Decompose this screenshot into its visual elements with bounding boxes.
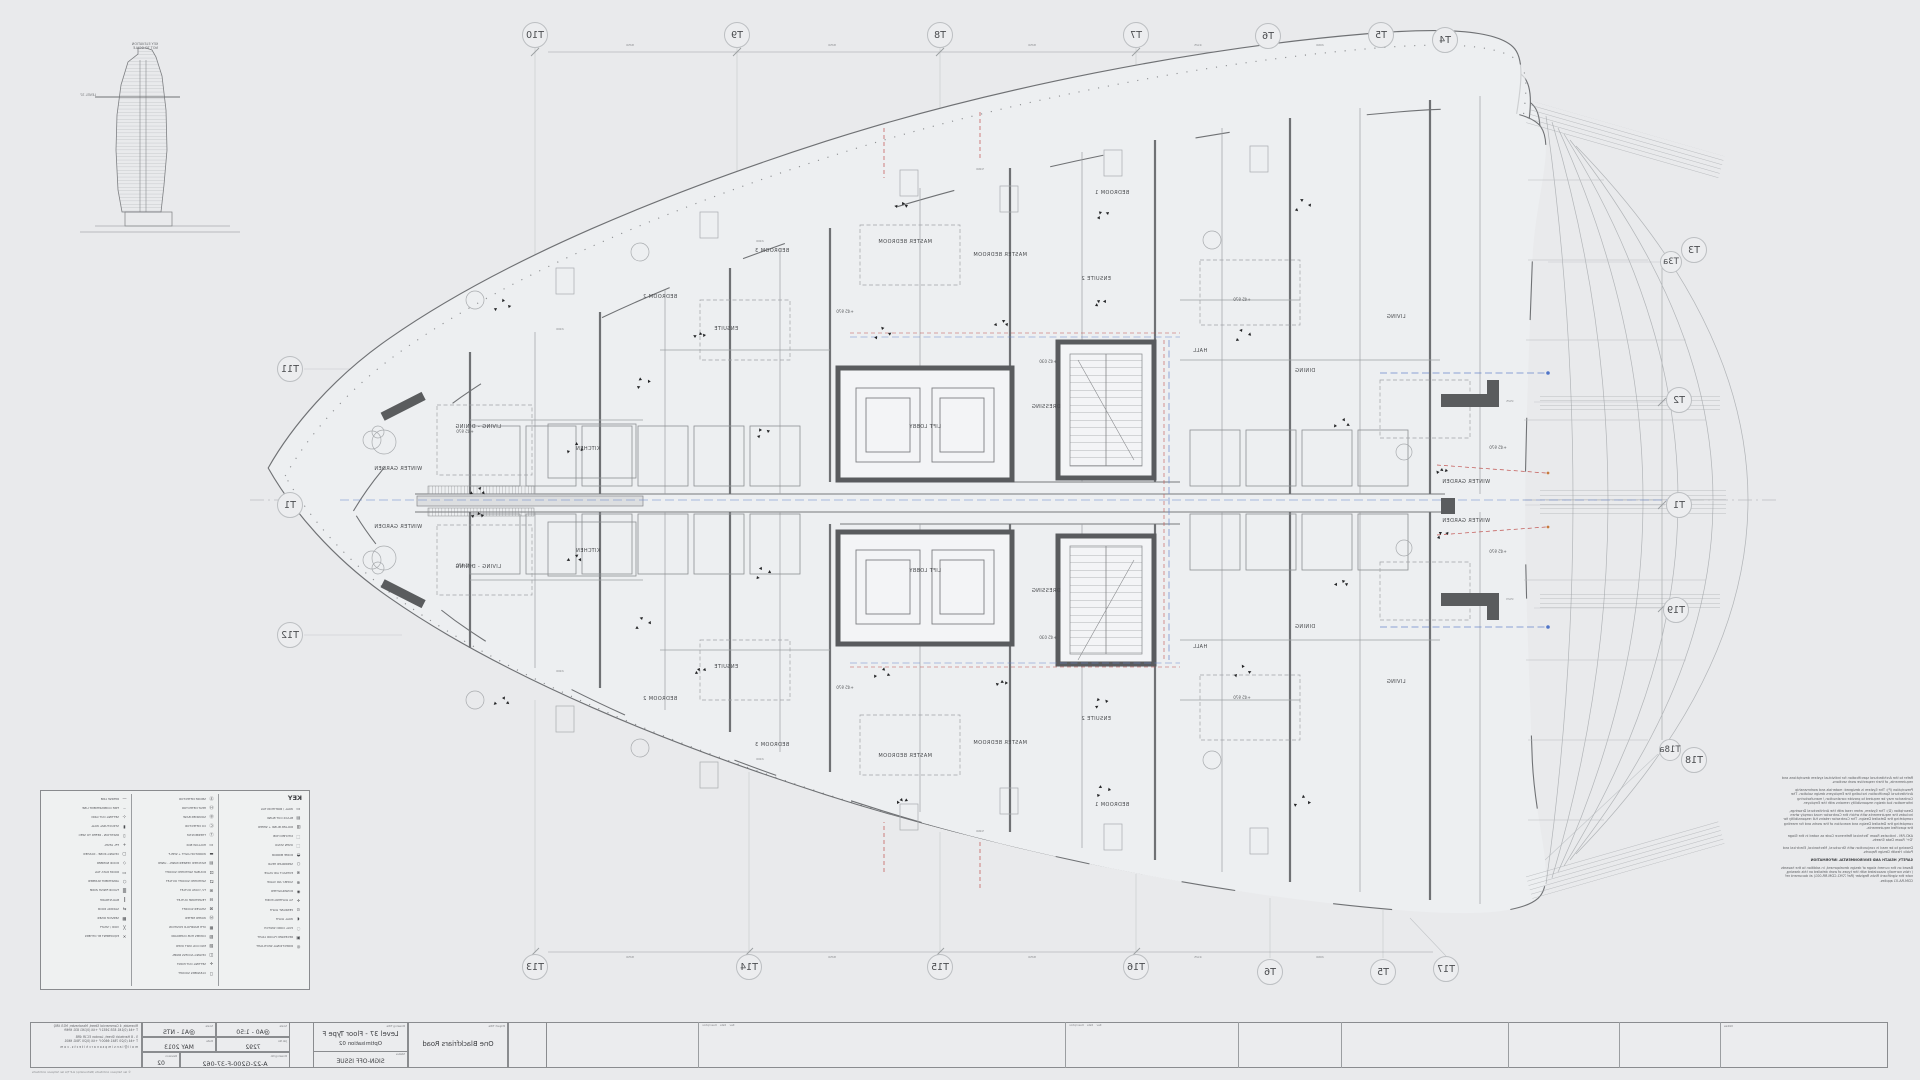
key-item: ▢CEILING ZONE - DASHED (48, 849, 128, 858)
grid-bubble-t5: T5 (1370, 959, 1396, 985)
key-item-label: CO DETECTOR (185, 824, 206, 828)
title-block (30, 1022, 1888, 1068)
room-label: ENSUITE 2 (1048, 277, 1144, 283)
key-symbol-icon: ▬ (208, 851, 215, 856)
key-item: ◖WALL LIGHT (222, 914, 302, 923)
key-symbol-icon: ▤ (295, 815, 302, 820)
key-item-label: CLEANERS SOCKET (178, 971, 206, 975)
room-label: WINTER GARDEN (350, 525, 446, 531)
level-tag: +45 970 (830, 685, 860, 690)
key-symbol-icon: ▒ (121, 888, 128, 893)
notes-paragraph: Prescription (P): The System is designed… (1780, 788, 1913, 805)
dim-label: 8250 (1020, 43, 1044, 47)
key-item-label: WALL / PARTITION TAG (261, 807, 293, 811)
level-tag: +45 970 (450, 429, 480, 434)
key-item: ▬WORKTOP LIGHT + SHELF (135, 849, 215, 858)
grid-bubble-t9: T9 (724, 22, 750, 48)
key-symbol-icon: ◻ (208, 971, 215, 976)
dim-label: 8250 (618, 955, 642, 959)
key-item: ▤BLACK OUT BLIND (222, 813, 302, 822)
revision-value: 02 (143, 1060, 179, 1067)
drawing-title-cell: Drawing Title Level 37 - Floor Type F Op… (313, 1022, 408, 1068)
rev-table-header: Rev Date Description (1069, 1024, 1101, 1027)
elevation-caption: KEY ELEVATION NOT TO SCALE (88, 42, 158, 50)
key-symbol-icon: ✛ (208, 961, 215, 966)
key-item: ⚀DOUBLE SWITCHED SOCKET (135, 868, 215, 877)
job-number-value: 7292 (217, 1044, 289, 1051)
titleblock-divider (1065, 1022, 1066, 1068)
grid-bubble-t8: T8 (927, 22, 953, 48)
key-item: —DEMISE LINE (48, 794, 128, 803)
key-item-label: KITCHEN HOB (273, 834, 293, 838)
dim-label: 1523 (1498, 597, 1522, 601)
notes-block: Refer to the Architectural specification… (1780, 776, 1913, 886)
key-item: ⊙PENDANT LIGHT (222, 905, 302, 914)
drawing-subtitle: Optimisation 02 (314, 1041, 407, 1047)
key-item-label: SLIDING DOOR (98, 907, 119, 911)
grid-bubble-t6: T6 (1257, 959, 1283, 985)
key-item: ▨FAN COIL UNIT OVER (135, 941, 215, 950)
notes-paragraph: AXO-RM - Indicates Room Technical Refere… (1780, 834, 1913, 843)
key-item: ╳VOID / SHAFT (48, 923, 128, 932)
key-item-label: VOID / SHAFT (100, 925, 119, 929)
architect-email: m a i l @ i a n s i m p s o n a r c h i … (34, 1046, 138, 1050)
key-item-label: DEMISE LINE (101, 797, 119, 801)
key-item: ▭ROOM DATA TAG (48, 868, 128, 877)
key-symbol-icon: ▢ (121, 851, 128, 856)
key-symbol-icon: ✕ (121, 934, 128, 939)
key-item: ▯PARTITION - REFER TO SPEC (48, 831, 128, 840)
dim-label: 4125 (1186, 955, 1210, 959)
dim-label: 1525 (1498, 399, 1522, 403)
key-item: ⒸCO DETECTOR (135, 822, 215, 831)
key-item-label: WATER METER (185, 916, 206, 920)
room-label: BEDROOM 2 (612, 295, 708, 301)
key-item: ▮STRUCTURAL WALL (48, 822, 128, 831)
key-item-label: APARTMENT NUMBER (88, 879, 119, 883)
key-item-label: ROLLER BLIND + SHEER (258, 825, 293, 829)
key-item-label: CEILING ZONE - DASHED (83, 852, 119, 856)
key-item: ⚁SWITCHED SOCKET OUTLET (135, 877, 215, 886)
level-tag: +45 970 (1483, 549, 1513, 554)
key-symbol-icon: ▨ (208, 943, 215, 948)
key-symbol-icon: ⇄ (121, 906, 128, 911)
key-item-label: ROOM DATA TAG (95, 870, 119, 874)
room-label: DRESSING (998, 405, 1094, 411)
date-cell: Date MAY 2013 (142, 1037, 216, 1052)
key-item: ⒽHEAT DETECTOR (135, 803, 215, 812)
key-symbol-icon: ◒ (295, 852, 302, 857)
key-item: ◌PULL CORD SWITCH (222, 923, 302, 932)
key-item-label: WORKTOP LIGHT + SHELF (168, 852, 206, 856)
titleblock-divider (1341, 1022, 1342, 1068)
room-label: HALL (1152, 645, 1248, 651)
room-label: HALL (1152, 349, 1248, 355)
grid-bubble-t5: T5 (1368, 22, 1394, 48)
key-item: ⊹SETTING OUT GRID (48, 812, 128, 821)
dim-label: 4125 (1186, 43, 1210, 47)
key-item-label: SPRINKLER HEAD (268, 862, 293, 866)
scale-a1-cell: Scale @A1 - NTS (142, 1022, 216, 1037)
level-tag: +45 030 (1033, 359, 1063, 364)
titleblock-divider (1508, 1022, 1509, 1068)
key-item: ✛5A LIGHTING POINT (222, 896, 302, 905)
key-item: ◒DOME MIRROR (222, 850, 302, 859)
key-item-label: EXTRACT AIR VALVE (264, 871, 293, 875)
grid-bubble-t3: T3 (1681, 237, 1707, 263)
key-symbol-icon: ║ (121, 897, 128, 902)
key-symbol-icon: ▭ (208, 842, 215, 847)
key-symbol-icon: ⬚ (295, 843, 302, 848)
room-label: LIVING (1348, 680, 1444, 686)
key-item-label: HEAT DETECTOR (182, 806, 206, 810)
dim-label: 2060 (1308, 955, 1332, 959)
date-value: MAY 2013 (143, 1044, 215, 1051)
notes-paragraph: Refer to the Architectural specification… (1780, 776, 1913, 785)
drawing-sheet: KEY ELEVATION NOT TO SCALE LEVEL 37 T10T… (0, 0, 1920, 1080)
key-symbol-icon: ▥ (295, 824, 302, 829)
key-symbol-icon: ╳ (121, 925, 128, 930)
key-item-label: PULL CORD SWITCH (264, 926, 293, 930)
key-symbol-icon: ◎ (295, 944, 302, 949)
key-item-label: RECESSED FLOOR LIGHT (257, 935, 293, 939)
key-symbol-icon: ◫ (208, 952, 215, 957)
room-label: KITCHEN (540, 447, 636, 453)
room-label: WINTER GARDEN (1418, 519, 1514, 525)
key-item-label: EQUIPMENT BY OTHERS (85, 934, 119, 938)
key-item-label: SHAVER SOCKET (182, 907, 206, 911)
level-tag: +45 970 (450, 563, 480, 568)
grid-bubble-t2: T2 (1666, 387, 1692, 413)
key-symbol-icon: — (121, 796, 128, 801)
key-item-label: TV / DATA OUTLET (180, 888, 206, 892)
room-label: LIFT LOBBY (877, 425, 973, 431)
grid-bubble-t15: T15 (927, 954, 953, 980)
address2-line2: T +44 (0)20 7841 6600 F +44 (0)20 7841 6… (34, 1040, 138, 1044)
room-label: LIVING (1348, 315, 1444, 321)
key-symbol-icon: ▭ (121, 870, 128, 875)
rev-table-header: Rev Date Description (702, 1024, 734, 1027)
key-item: ⊞TV / DATA OUTLET (135, 886, 215, 895)
dim-label: 8250 (1020, 955, 1044, 959)
room-label: MASTER BEDROOM (952, 253, 1048, 259)
copyright-line: © Ian Simpson Architects (Partnership) L… (32, 1070, 131, 1074)
notes-paragraph: Drawing to be read in conjunction with S… (1780, 846, 1913, 855)
grid-bubble-t11: T11 (277, 356, 303, 382)
key-item: ▭WALL / PARTITION TAG (222, 804, 302, 813)
key-symbol-icon: ⬡ (121, 879, 128, 884)
job-number-cell: Job No 7292 (216, 1037, 290, 1052)
room-label: BEDROOM 1 (1064, 803, 1160, 809)
notes-paragraph: Based on the current stage of design dev… (1780, 866, 1913, 883)
key-item: ⊠SHAVER SOCKET (135, 904, 215, 913)
key-item: ▦UFH MANIFOLD POSITION (135, 923, 215, 932)
notes-heading: SAFETY, HEALTH AND ENVIRONMENTAL INFORMA… (1780, 858, 1913, 862)
key-item: ▥ROLLER BLIND + SHEER (222, 822, 302, 831)
key-item: ◉DOWNLIGHTER (222, 887, 302, 896)
key-item: ⊟TELEPHONE OUTLET (135, 895, 215, 904)
key-symbol-icon: ⚁ (208, 879, 215, 884)
key-item: ⓈSMOKE DETECTOR (135, 794, 215, 803)
key-item: ▣RECESSED FLOOR LIGHT (222, 933, 302, 942)
titleblock-divider (1619, 1022, 1620, 1068)
key-symbol-icon: ◖ (295, 916, 302, 921)
key-item: ▒FLOOR FINISH ZONE (48, 886, 128, 895)
key-symbol-icon: ◇ (121, 860, 128, 865)
key-item: ◫CEILING ACCESS PANEL (135, 950, 215, 959)
grid-bubble-t7: T7 (1123, 22, 1149, 48)
key-item-label: SETTING OUT GRID (91, 815, 119, 819)
grid-bubble-t4: T4 (1432, 27, 1458, 53)
room-label: DINING (1257, 625, 1353, 631)
project-title-cell: Project Title One Blackfriars Road (408, 1022, 508, 1068)
key-symbol-icon: ⊗ (295, 870, 302, 875)
room-label: BEDROOM 1 (1064, 191, 1160, 197)
key-item: ⓂWATER METER (135, 913, 215, 922)
room-label: ENSUITE (678, 327, 774, 333)
key-item: ⇄SLIDING DOOR (48, 904, 128, 913)
key-symbol-icon: ▣ (295, 935, 302, 940)
key-symbol-icon: ✛ (295, 898, 302, 903)
key-symbol-icon: ⊟ (208, 897, 215, 902)
key-item-label: FLOOR FINISH ZONE (90, 888, 119, 892)
key-item: ◎DIRECTIONAL SPOTLIGHT (222, 942, 302, 951)
key-item-label: PARTITION - REFER TO SPEC (78, 833, 119, 837)
key-item: ⊕SUPPLY AIR VALVE (222, 878, 302, 887)
key-item-label: FFL LEVEL (104, 843, 119, 847)
notes-paragraph: Description (D): The System, when read w… (1780, 809, 1913, 830)
key-symbol-icon: ▧ (208, 934, 215, 939)
key-symbol-icon: ⊞ (208, 888, 215, 893)
titleblock-divider (1720, 1022, 1721, 1068)
key-item-label: STRUCTURAL WALL (91, 824, 119, 828)
key-item-label: FIRE COMPARTMENT LINE (82, 806, 119, 810)
level-tag: +45 970 (830, 309, 860, 314)
key-symbol-icon: ﹘ (121, 805, 128, 811)
key-item-label: PENDANT LIGHT (270, 908, 293, 912)
dim-label: 5460 (968, 829, 992, 833)
room-label: MASTER BEDROOM (857, 754, 953, 760)
key-item: ⊗EXTRACT AIR VALVE (222, 868, 302, 877)
grid-bubble-t3a: T3a (1660, 251, 1682, 273)
key-symbol-icon: Ⓢ (208, 796, 215, 802)
key-item: ﹘FIRE COMPARTMENT LINE (48, 803, 128, 812)
room-label: DINING (1257, 369, 1353, 375)
grid-bubble-t16: T16 (1123, 954, 1149, 980)
grid-bubble-t17: T17 (1433, 956, 1459, 982)
dim-label: 2060 (1308, 43, 1332, 47)
key-symbol-icon: ⬚ (295, 834, 302, 839)
key-symbol-icon: Ⓜ (208, 915, 215, 921)
key-item-label: COMMS HUB CUPBOARD (171, 934, 206, 938)
scale-a0-value: @A0 - 1:50 (217, 1029, 289, 1036)
drawing-title: Level 37 - Floor Type F (314, 1030, 407, 1038)
key-symbol-icon: ◌ (295, 926, 302, 931)
titleblock-divider (1238, 1022, 1239, 1068)
key-legend: KEY ▭WALL / PARTITION TAG▤BLACK OUT BLIN… (40, 790, 310, 990)
key-item: ▩SERVICE RISER (48, 913, 128, 922)
key-item-label: DOOR NUMBER (97, 861, 119, 865)
key-item-label: DOME MIRROR (272, 853, 293, 857)
key-item-label: DOWNLIGHTER (271, 889, 293, 893)
key-item: ⬚KITCHEN HOB (222, 832, 302, 841)
room-label: KITCHEN (540, 549, 636, 555)
status-value: SIGN-OFF ISSUE (314, 1058, 407, 1065)
room-label: BEDROOM 2 (612, 697, 708, 703)
key-item-label: CEILING ACCESS PANEL (172, 953, 206, 957)
key-item-label: HOLLOW BOX (186, 843, 206, 847)
issue-cell (508, 1022, 547, 1068)
dim-label: 2400 (748, 757, 772, 761)
elevation-caption-line2: NOT TO SCALE (133, 46, 158, 50)
room-label: BEDROOM 3 (724, 743, 820, 749)
room-label: ENSUITE 2 (1048, 717, 1144, 723)
level-tag: +45 970 (1227, 297, 1257, 302)
scale-a1-value: @A1 - NTS (143, 1029, 215, 1036)
level-tag: +45 030 (1033, 635, 1063, 640)
grid-bubble-t19: T19 (1663, 597, 1689, 623)
room-label: BEDROOM 3 (724, 249, 820, 255)
key-item-label: OVEN STACK (275, 843, 293, 847)
key-item: ✕EQUIPMENT BY OTHERS (48, 932, 128, 941)
key-item-label: 5A LIGHTING POINT (265, 898, 293, 902)
dim-label: 8250 (820, 955, 844, 959)
key-item: ║BALUSTRADE (48, 895, 128, 904)
address1-line2: T +44 (0)161 835 2652 F +44 (0)161 831 6… (34, 1029, 138, 1033)
key-item-label: WALL LIGHT (276, 917, 293, 921)
key-item: ⬡APARTMENT NUMBER (48, 877, 128, 886)
mirrored-annotation-layer: KEY ELEVATION NOT TO SCALE LEVEL 37 T10T… (0, 0, 1920, 1080)
key-symbol-icon: ▤ (208, 860, 215, 865)
key-item: ✛SETTING OUT POINT (135, 959, 215, 968)
key-item-label: SERVICE RISER (97, 916, 119, 920)
room-label: LIFT LOBBY (877, 569, 973, 575)
grid-bubble-t1: T1 (1666, 492, 1692, 518)
key-item-label: SUPPLY AIR VALVE (267, 880, 293, 884)
dim-label: 8250 (820, 43, 844, 47)
key-symbol-icon: Ⓑ (208, 814, 215, 820)
architect-address-cell: Riverside, 4 Commercial Street, Manchest… (30, 1022, 142, 1068)
key-symbol-icon: ⚀ (208, 870, 215, 875)
room-label: DRESSING (998, 589, 1094, 595)
key-item: ◇DOOR NUMBER (48, 858, 128, 867)
dim-label: 2400 (548, 669, 572, 673)
key-item: ▧COMMS HUB CUPBOARD (135, 932, 215, 941)
key-item: ⬚OVEN STACK (222, 841, 302, 850)
dim-label: 5460 (968, 167, 992, 171)
key-item: ⓉTHERMOSTAT (135, 831, 215, 840)
key-item-label: DIRECTIONAL SPOTLIGHT (256, 944, 293, 948)
key-title: KEY (222, 794, 302, 802)
grid-bubble-t1: T1 (277, 492, 303, 518)
key-symbol-icon: ▮ (121, 824, 128, 829)
level-tag: +45 970 (1227, 695, 1257, 700)
key-item-label: SETTING OUT POINT (177, 962, 206, 966)
key-symbol-icon: Ⓣ (208, 832, 215, 838)
key-symbol-icon: ⊹ (121, 814, 128, 819)
elevation-level-label: LEVEL 37 (62, 93, 96, 97)
dim-label: 2400 (548, 327, 572, 331)
key-item: ▭HOLLOW BOX (135, 840, 215, 849)
key-symbol-icon: ⊙ (295, 907, 302, 912)
room-label: ENSUITE (678, 665, 774, 671)
key-item-label: BALUSTRADE (100, 898, 119, 902)
drawing-number-value: A-22-G200-F-37-062 (181, 1060, 289, 1068)
titleblock-divider (698, 1022, 699, 1068)
key-item-label: TELEPHONE OUTLET (177, 898, 207, 902)
key-symbol-icon: Ⓒ (208, 823, 215, 829)
key-item-label: SOUNDER BASE (183, 815, 206, 819)
key-symbol-icon: ▭ (295, 806, 302, 811)
key-item-label: SMOKE DETECTOR (179, 797, 206, 801)
room-label: MASTER BEDROOM (857, 240, 953, 246)
project-title: One Blackfriars Road (409, 1040, 507, 1048)
key-item-label: FAN COIL UNIT OVER (176, 944, 206, 948)
grid-bubble-t13: T13 (522, 954, 548, 980)
key-symbol-icon: Ⓗ (208, 805, 215, 811)
key-item-label: THERMOSTAT (187, 833, 206, 837)
key-item: ⒷSOUNDER BASE (135, 812, 215, 821)
key-symbol-icon: + (121, 842, 128, 847)
key-symbol-icon: ⊠ (208, 906, 215, 911)
key-symbol-icon: ▯ (121, 833, 128, 838)
dim-label: 2400 (748, 239, 772, 243)
revision-cell: Revision 02 (142, 1052, 180, 1068)
room-label: WINTER GARDEN (1418, 480, 1514, 486)
key-item: ▤MATCHED VENEER PANEL - LINED (135, 858, 215, 867)
room-label: WINTER GARDEN (350, 467, 446, 473)
grid-bubble-t6: T6 (1255, 23, 1281, 49)
grid-bubble-t18a: T18a (1659, 739, 1681, 761)
grid-bubble-t14: T14 (736, 954, 762, 980)
key-item-label: SWITCHED SOCKET OUTLET (166, 879, 206, 883)
key-item: +FFL LEVEL (48, 840, 128, 849)
key-symbol-icon: ▦ (208, 925, 215, 930)
key-item-label: DOUBLE SWITCHED SOCKET (165, 870, 206, 874)
level-tag: +45 970 (1483, 445, 1513, 450)
key-symbol-icon: ⊕ (295, 880, 302, 885)
room-label: MASTER BEDROOM (952, 741, 1048, 747)
key-item-label: MATCHED VENEER PANEL - LINED (158, 861, 206, 865)
key-item: ◻CLEANERS SOCKET (135, 969, 215, 978)
scale-a0-cell: Scale @A0 - 1:50 (216, 1022, 290, 1037)
key-item: ○SPRINKLER HEAD (222, 859, 302, 868)
dim-label: 8250 (618, 43, 642, 47)
key-symbol-icon: ○ (295, 861, 302, 866)
grid-bubble-t12: T12 (277, 622, 303, 648)
grid-bubble-t10: T10 (522, 22, 548, 48)
key-symbol-icon: ▩ (121, 916, 128, 921)
grid-bubble-t18: T18 (1681, 747, 1707, 773)
key-symbol-icon: ◉ (295, 889, 302, 894)
key-item-label: BLACK OUT BLIND (267, 816, 293, 820)
key-item-label: UFH MANIFOLD POSITION (169, 925, 206, 929)
drawing-number-cell: Drawing No A-22-G200-F-37-062 (180, 1052, 290, 1068)
notes-cell-label: Notes (1724, 1024, 1733, 1028)
